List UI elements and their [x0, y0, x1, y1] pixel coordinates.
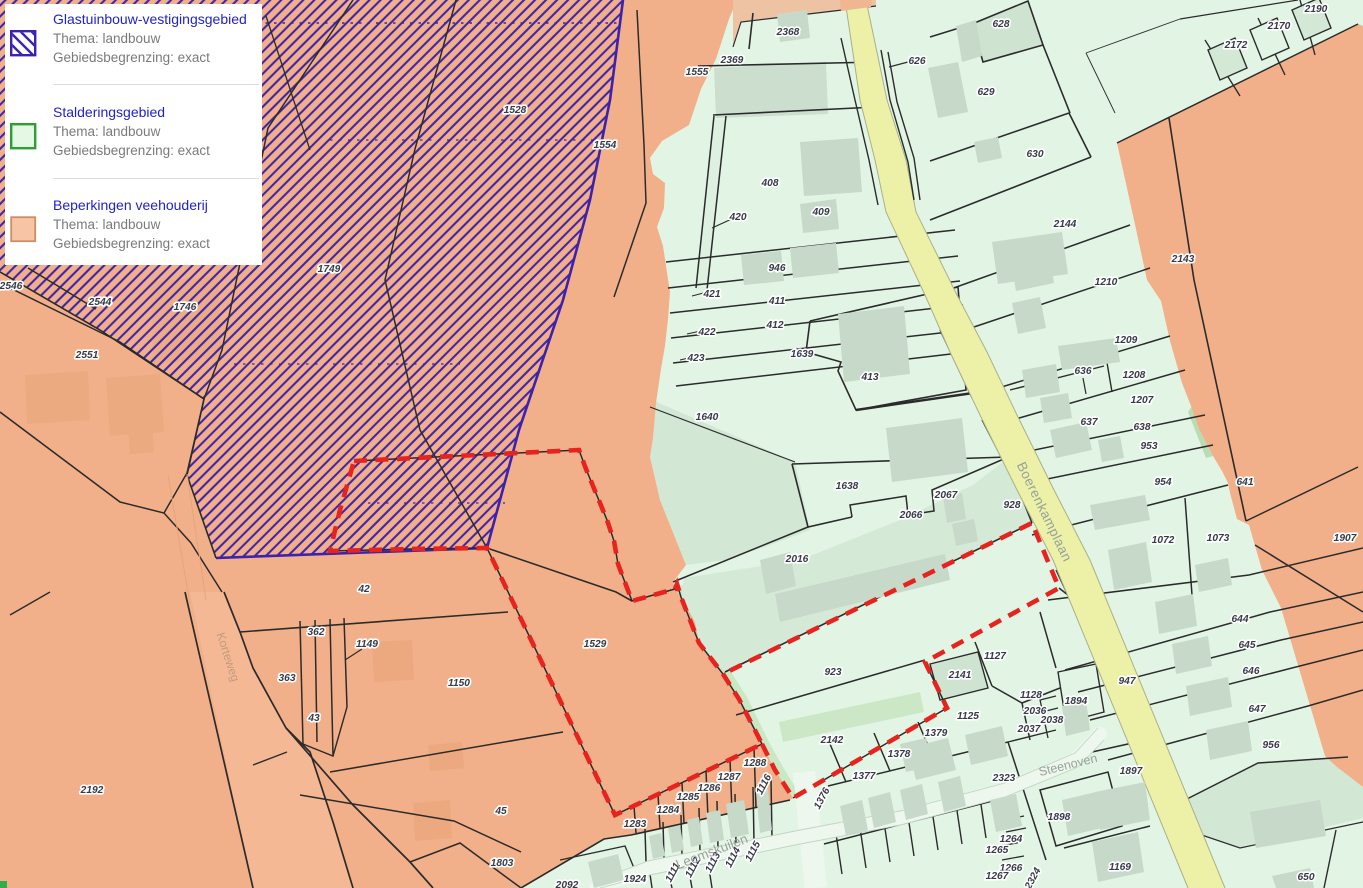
svg-text:Glastuinbouw-vestigingsgebied: Glastuinbouw-vestigingsgebied	[53, 11, 247, 27]
svg-text:Gebiedsbegrenzing: exact: Gebiedsbegrenzing: exact	[53, 50, 210, 65]
svg-text:Beperkingen veehouderij: Beperkingen veehouderij	[53, 197, 208, 213]
svg-text:Stalderingsgebied: Stalderingsgebied	[53, 104, 165, 120]
svg-text:Thema: landbouw: Thema: landbouw	[53, 217, 161, 232]
svg-text:Thema: landbouw: Thema: landbouw	[53, 31, 161, 46]
svg-text:Gebiedsbegrenzing: exact: Gebiedsbegrenzing: exact	[53, 236, 210, 251]
svg-text:Thema: landbouw: Thema: landbouw	[53, 124, 161, 139]
svg-text:Gebiedsbegrenzing: exact: Gebiedsbegrenzing: exact	[53, 143, 210, 158]
